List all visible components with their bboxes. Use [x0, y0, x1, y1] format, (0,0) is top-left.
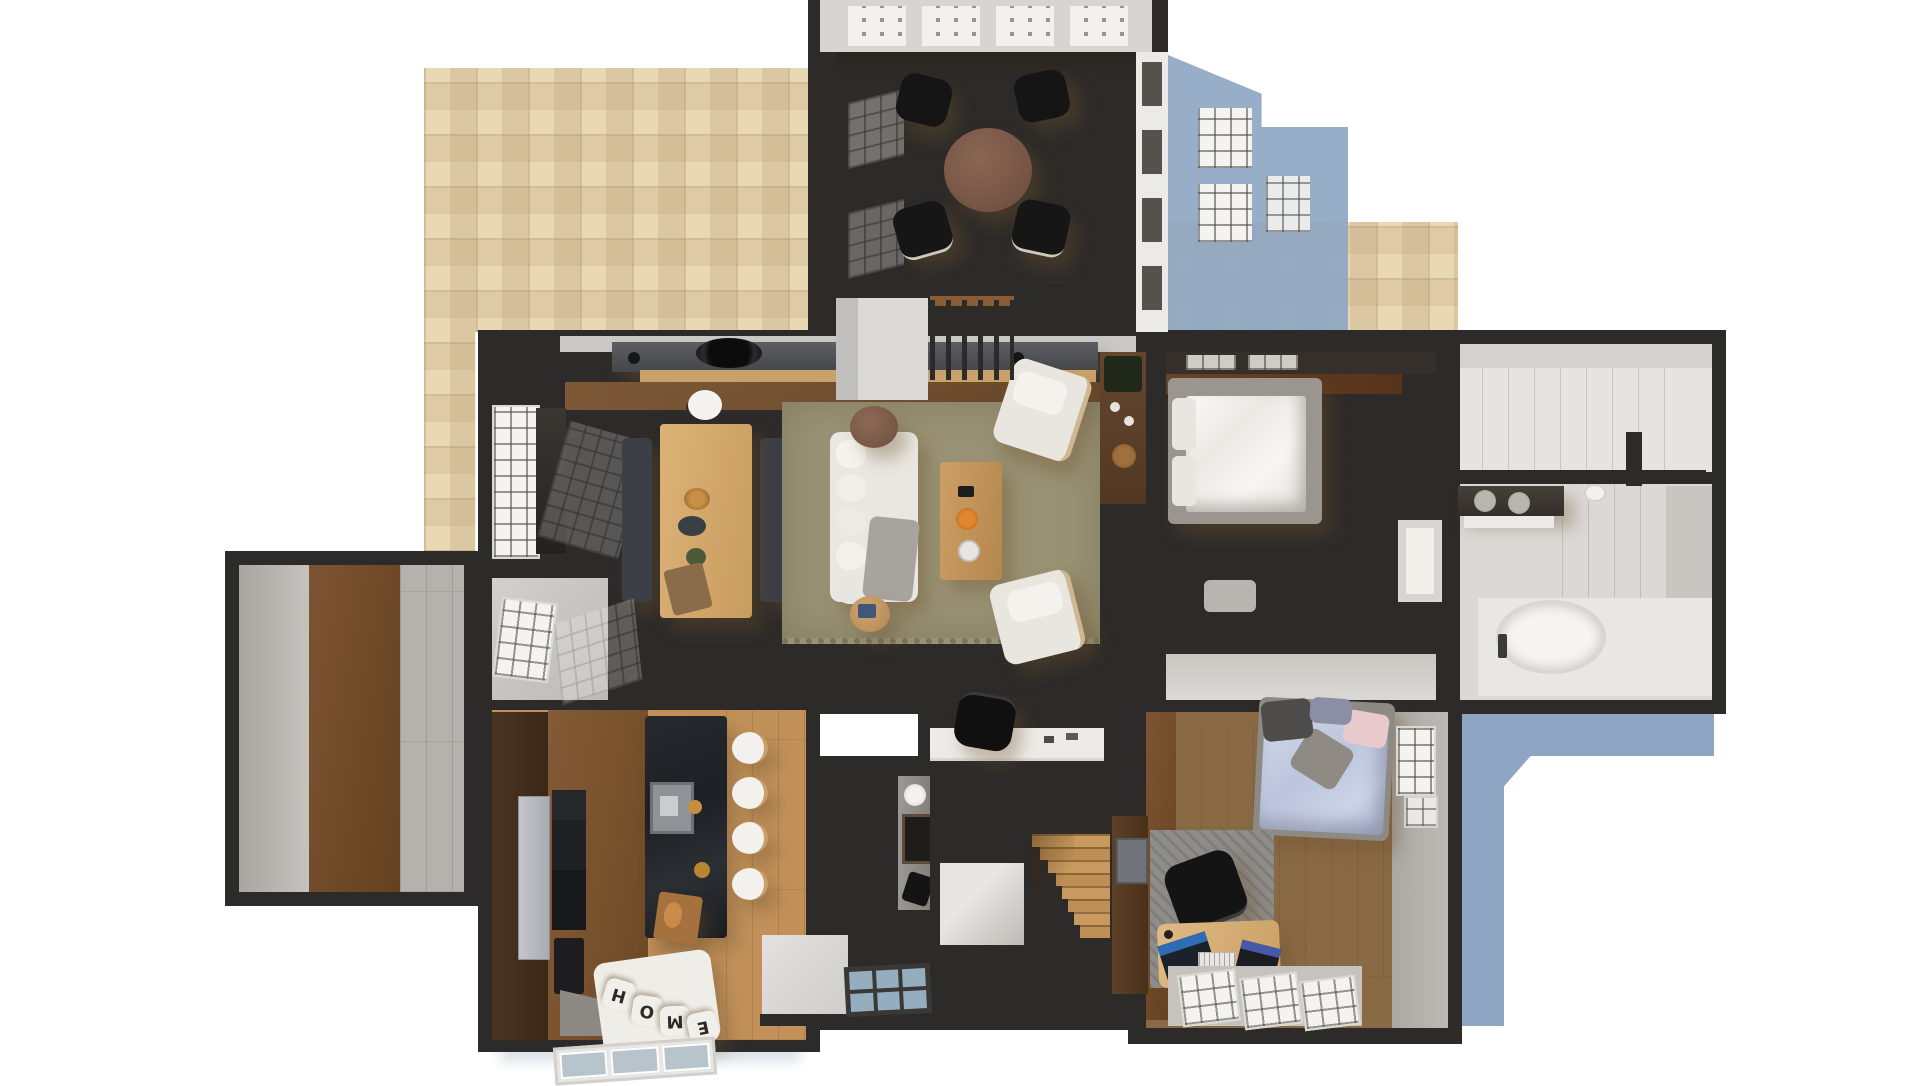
bar-stool — [732, 822, 768, 854]
stair-landing — [1030, 776, 1110, 834]
chimney-wall — [836, 298, 928, 400]
candle-icon — [1124, 416, 1134, 426]
mat-stripe — [849, 971, 873, 990]
black-desk-chair — [952, 689, 1019, 753]
sofa-throw-blanket — [862, 516, 920, 603]
building-shadow-top — [1168, 55, 1348, 332]
gold-bowl-icon — [694, 862, 710, 878]
kettle-icon — [688, 390, 722, 420]
shadow-window-icon — [1198, 184, 1252, 242]
sunroom-round-table — [944, 128, 1032, 212]
window-slot-icon — [1142, 198, 1162, 242]
desk-item — [1066, 733, 1078, 740]
oven-column — [552, 790, 586, 930]
den-oak-floor — [400, 565, 464, 892]
pillow-letter: H — [609, 983, 628, 1006]
sink-icon — [1474, 490, 1496, 512]
door-pane — [559, 1050, 608, 1079]
mat-stripe — [902, 968, 926, 987]
mat-stripe — [877, 991, 901, 1010]
south-window-icon — [1299, 975, 1361, 1031]
door-pane — [662, 1043, 711, 1072]
door-pane — [610, 1046, 659, 1075]
bathtub — [1496, 600, 1606, 674]
bar-stool — [732, 732, 768, 764]
wardrobe-monitor — [1116, 838, 1148, 884]
sunroom-wall-shade — [836, 52, 1136, 82]
pillow-letter: O — [638, 1000, 655, 1022]
stairwell-landing — [940, 785, 1024, 863]
sunlight-patch — [848, 89, 904, 169]
bread-loaf — [684, 488, 710, 510]
mat-stripe — [903, 990, 927, 1009]
stair-tread — [1074, 912, 1110, 925]
skylight-window-icon — [922, 6, 980, 46]
window-slot-icon — [1142, 266, 1162, 310]
plant-icon — [1104, 356, 1142, 392]
bathroom-right-wall-face — [1666, 486, 1712, 614]
vanity-front — [1464, 516, 1554, 528]
dark-pillow — [1260, 697, 1314, 742]
den-west-wall-face — [239, 565, 309, 892]
mat-stripe — [850, 993, 874, 1012]
candle-icon — [1110, 402, 1120, 412]
skylight-window-icon — [996, 6, 1054, 46]
tub-faucet-icon — [1498, 634, 1507, 658]
bedroom2-window — [1396, 726, 1436, 796]
island-sink-basin — [660, 796, 678, 816]
stair-shadow — [1030, 834, 1074, 940]
round-hearth-icon — [696, 338, 762, 368]
den-walnut-floor — [308, 565, 400, 892]
mat-stripe — [876, 969, 900, 988]
living-window — [492, 405, 540, 559]
stair-tread — [1068, 899, 1110, 912]
skylight-window-icon — [1070, 6, 1128, 46]
stairwell-void — [940, 863, 1024, 945]
blue-book — [858, 604, 876, 618]
shadow-window-icon — [1198, 108, 1252, 168]
towel-roll-icon — [1584, 484, 1606, 502]
letter-pillow: O — [630, 994, 664, 1028]
balcony-railing — [930, 300, 1014, 380]
sunlight-patch — [848, 199, 904, 279]
bath-wall-stub — [1626, 432, 1642, 486]
stair-tread — [1080, 925, 1110, 938]
mouse-icon — [1164, 930, 1173, 939]
flower-vase-icon — [904, 784, 926, 806]
basket-icon — [1112, 444, 1136, 468]
master-door — [1398, 520, 1442, 602]
fridge — [518, 796, 550, 960]
window-slot-icon — [1142, 62, 1162, 106]
bed-pillow — [1172, 456, 1196, 506]
table-bowl — [678, 516, 706, 536]
dining-bench — [622, 438, 652, 602]
sink-icon — [1508, 492, 1530, 514]
floor-plan-render: H O M E — [0, 0, 1920, 1080]
pillow-letter: M — [666, 1011, 684, 1032]
south-window-icon — [1239, 972, 1303, 1031]
bar-stool — [732, 868, 768, 900]
skylight-window-icon — [848, 6, 906, 46]
entry-floor — [762, 935, 848, 1018]
blue-pillow — [1309, 697, 1353, 726]
window-slot-icon — [1142, 130, 1162, 174]
pillow-letter: E — [695, 1016, 711, 1038]
bathroom-wood-floor — [1562, 484, 1666, 614]
remote-icon — [958, 486, 974, 497]
side-table-round — [850, 406, 898, 448]
orange-bowl — [956, 508, 978, 530]
desk-item — [1044, 736, 1054, 743]
shadow-window-icon — [1266, 176, 1310, 232]
bedroom2-window-partial — [1404, 796, 1438, 828]
bar-stool — [732, 777, 768, 809]
pastry-icon — [688, 800, 702, 814]
master-window-icon — [1186, 355, 1236, 370]
jar-icon — [958, 540, 980, 562]
closet-divider-wall — [1460, 470, 1706, 484]
bed-duvet — [1186, 396, 1306, 512]
entry-threshold — [760, 1014, 850, 1026]
closet-north-wall-face — [1460, 344, 1712, 368]
master-south-wall-face — [1166, 654, 1436, 700]
coffee-machine — [554, 938, 584, 994]
south-window-icon — [1177, 969, 1241, 1028]
bed-pillow — [1172, 398, 1196, 450]
master-window-icon — [1248, 355, 1298, 370]
bay-window — [492, 597, 557, 683]
bedroom-bench — [1204, 580, 1256, 612]
doormat — [844, 963, 932, 1017]
decor-dot — [628, 352, 640, 364]
